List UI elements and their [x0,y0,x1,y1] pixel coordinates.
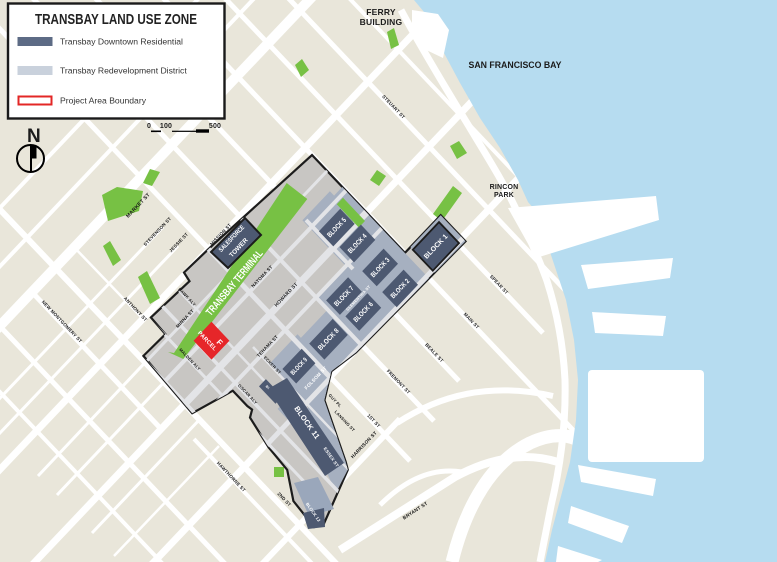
svg-text:FERRY: FERRY [366,7,396,17]
svg-text:100: 100 [160,123,172,130]
svg-text:Project Area Boundary: Project Area Boundary [60,96,147,106]
svg-text:RINCON: RINCON [490,184,519,191]
svg-text:Transbay Downtown Residential: Transbay Downtown Residential [60,37,183,47]
svg-text:0: 0 [147,123,151,130]
svg-text:PARK: PARK [494,192,514,199]
svg-text:TRANSBAY LAND USE ZONE: TRANSBAY LAND USE ZONE [35,11,197,28]
svg-text:N: N [27,126,41,147]
svg-text:BUILDING: BUILDING [360,17,403,27]
svg-text:500: 500 [209,123,221,130]
svg-text:Transbay Redevelopment Distric: Transbay Redevelopment District [60,66,187,76]
svg-text:SAN FRANCISCO BAY: SAN FRANCISCO BAY [469,60,563,71]
